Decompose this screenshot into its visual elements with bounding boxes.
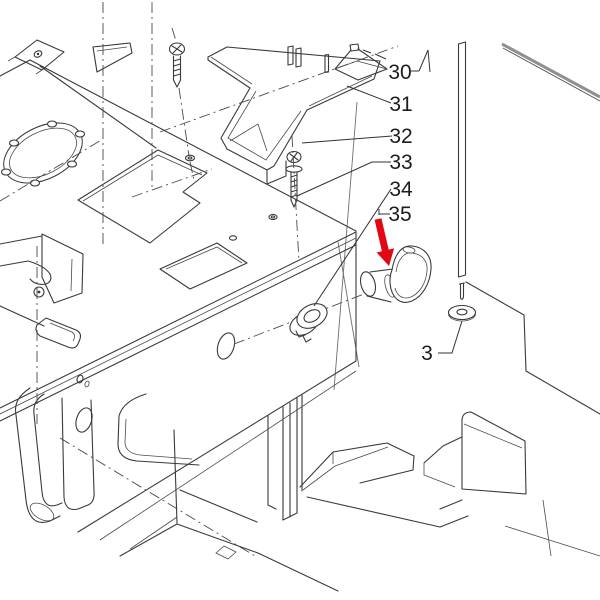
centerlines xyxy=(0,2,398,556)
callout-3: 3 xyxy=(421,342,433,365)
callout-labels: 30 31 32 33 34 35 3 xyxy=(388,61,433,365)
left-bracket xyxy=(0,234,83,348)
screw-top xyxy=(170,43,185,87)
right-panel xyxy=(466,44,600,414)
callout-35: 35 xyxy=(388,203,411,226)
grommet xyxy=(286,299,331,342)
rod-assembly xyxy=(449,42,476,321)
knob xyxy=(358,246,431,302)
callout-34: 34 xyxy=(389,178,413,201)
washer xyxy=(449,306,476,322)
callout-32: 32 xyxy=(389,125,412,148)
parts-diagram: 30 31 32 33 34 35 3 xyxy=(0,0,600,600)
diagram-canvas: 30 31 32 33 34 35 3 xyxy=(0,0,600,600)
housing xyxy=(0,40,356,540)
callout-31: 31 xyxy=(389,93,412,116)
callout-33: 33 xyxy=(389,151,412,174)
bracket-assembly xyxy=(208,44,387,184)
callout-30: 30 xyxy=(388,61,411,84)
front-legs xyxy=(16,388,199,525)
